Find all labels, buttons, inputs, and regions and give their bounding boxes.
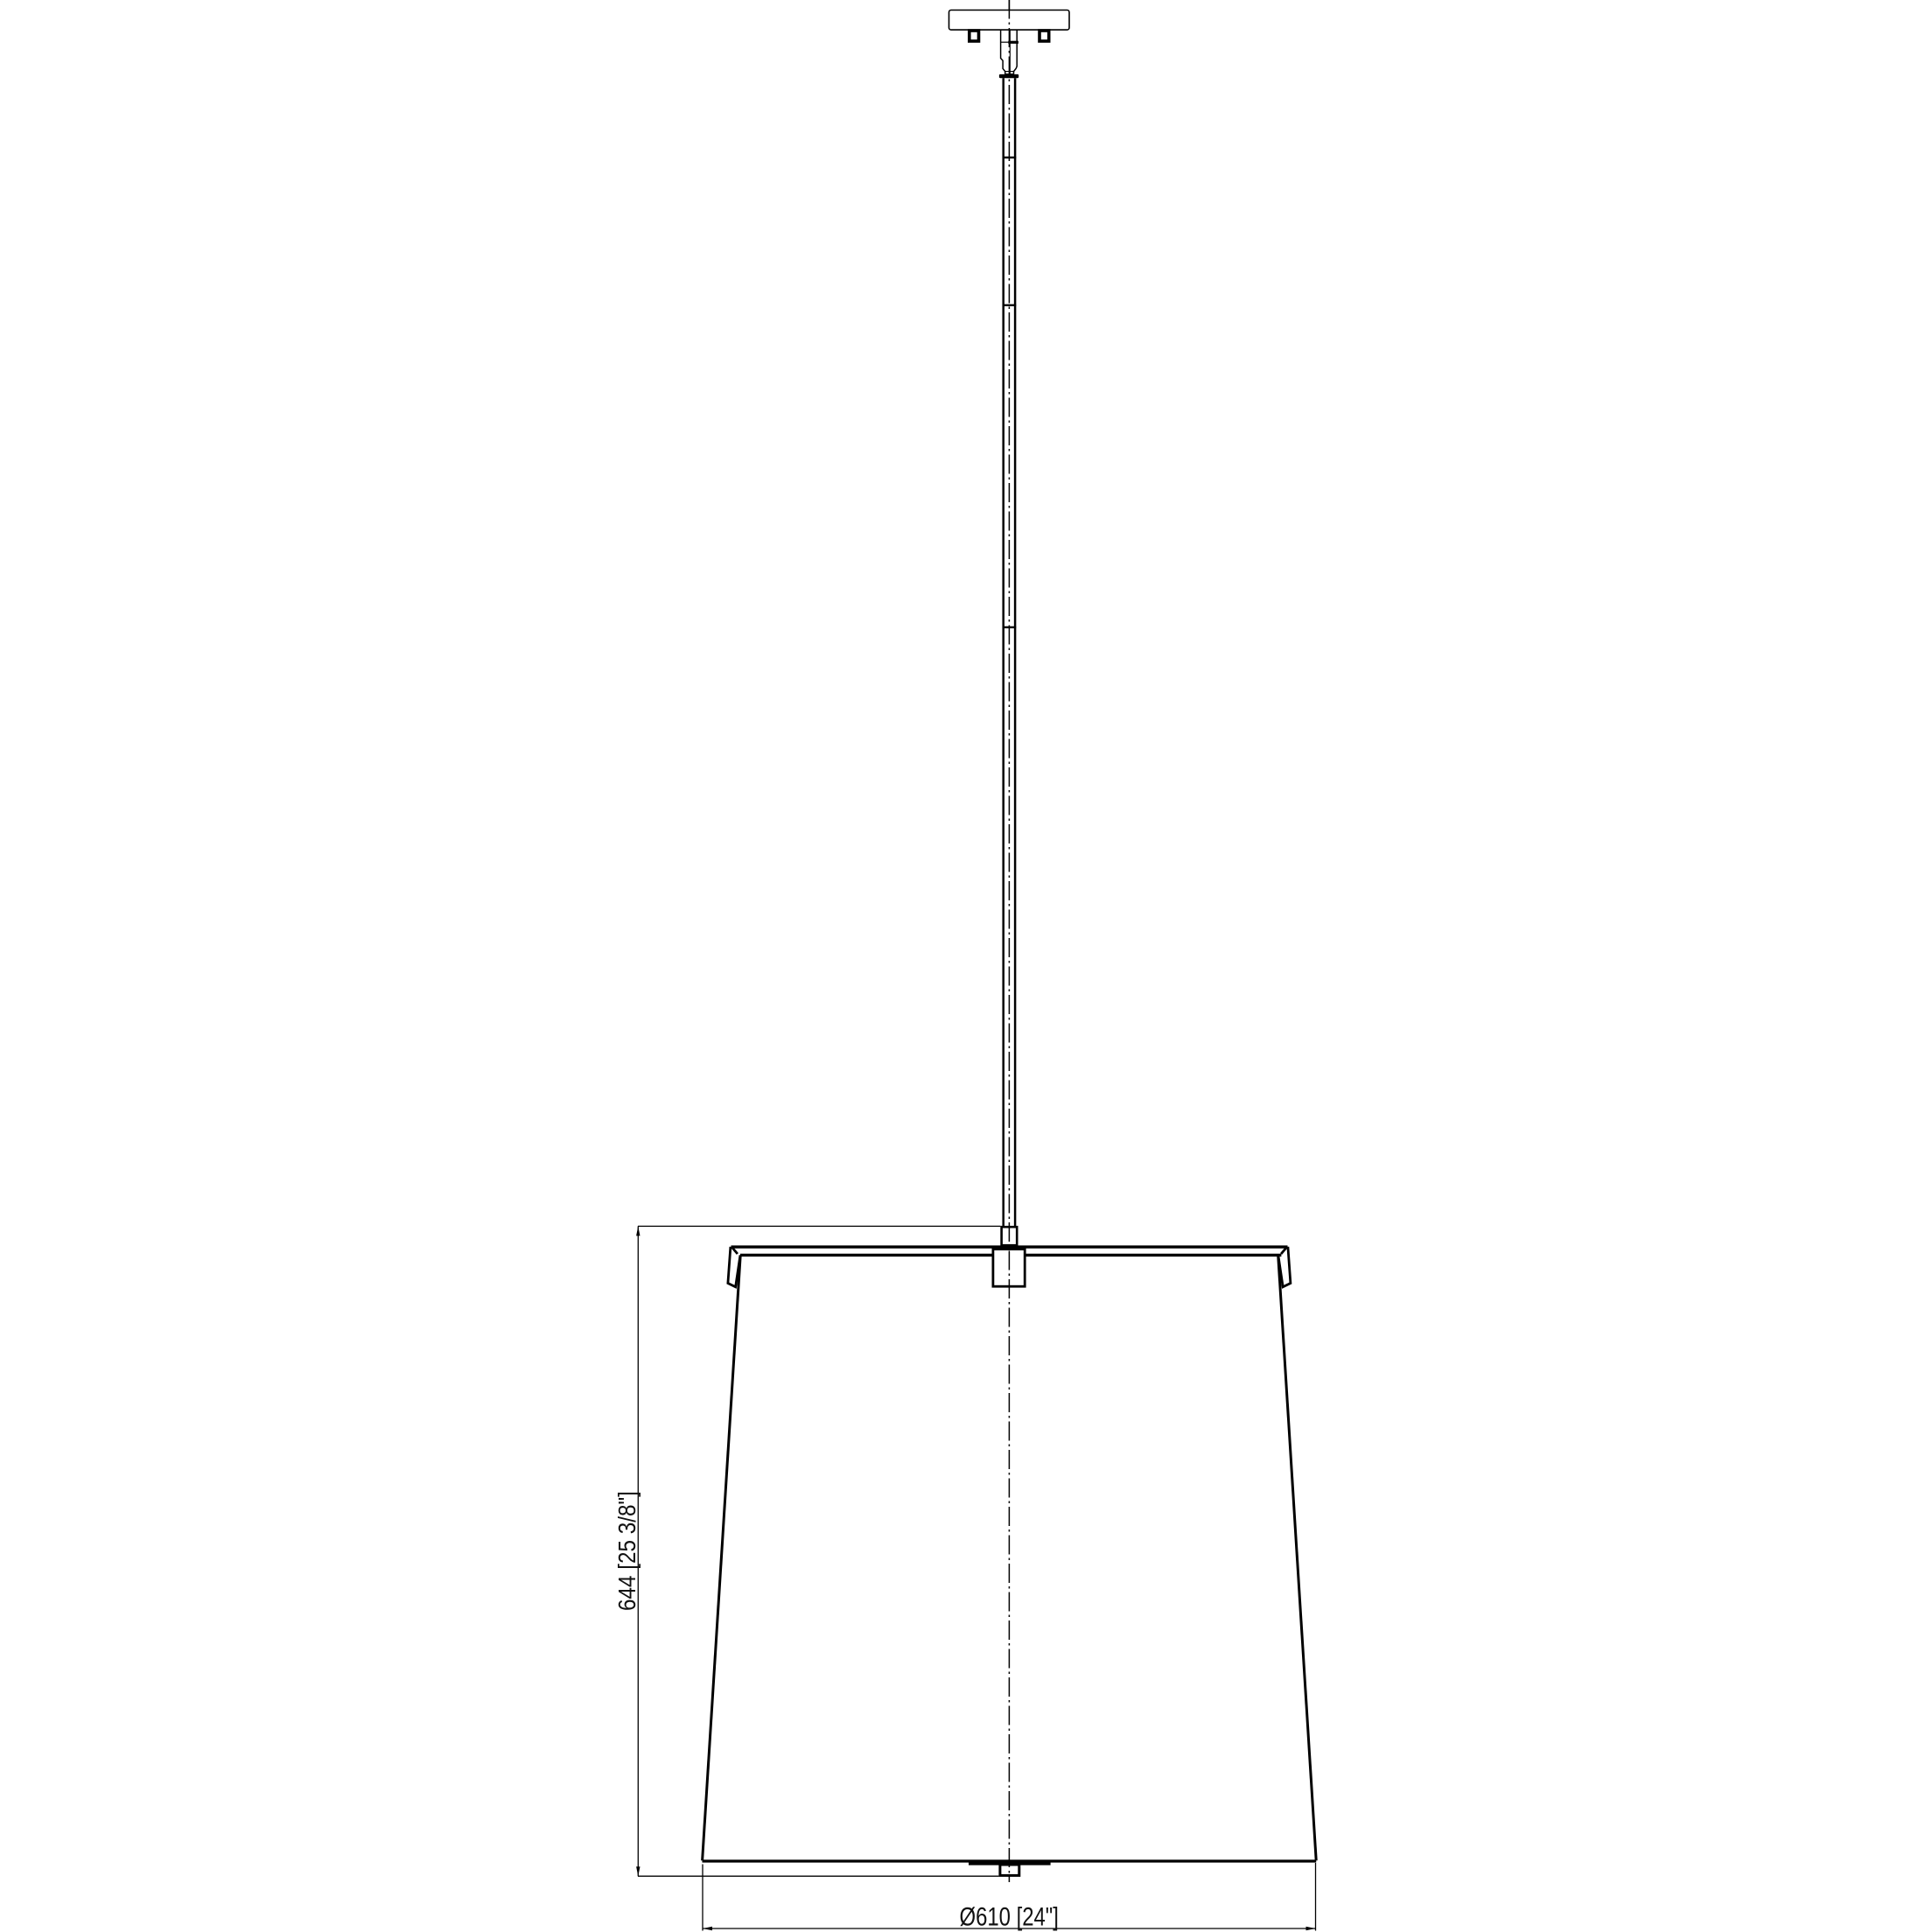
- svg-text:644 [25 3/8"]: 644 [25 3/8"]: [612, 1491, 640, 1611]
- svg-text:Ø610 [24"]: Ø610 [24"]: [960, 1901, 1059, 1931]
